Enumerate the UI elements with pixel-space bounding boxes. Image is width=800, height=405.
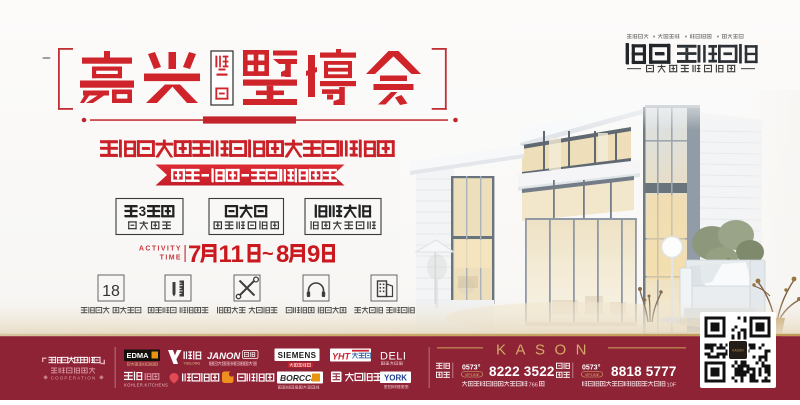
svg-text:KASON: KASON: [732, 349, 744, 353]
svg-text:SIEMENS: SIEMENS: [278, 351, 317, 360]
svg-text:3: 3: [139, 204, 147, 219]
svg-text:8222 3522: 8222 3522: [489, 364, 555, 379]
svg-text:VIPLINE: VIPLINE: [465, 373, 480, 377]
svg-text:KOHLER.KITCHENS: KOHLER.KITCHENS: [124, 383, 168, 388]
svg-text:YUELONG: YUELONG: [184, 362, 201, 366]
svg-text:8818 5777: 8818 5777: [611, 364, 677, 379]
svg-text:7: 7: [188, 241, 201, 268]
svg-text:DELI: DELI: [380, 351, 406, 363]
svg-text:YORK: YORK: [384, 374, 407, 383]
svg-text:BORCCI: BORCCI: [280, 373, 314, 383]
svg-text:8: 8: [276, 241, 289, 268]
svg-text:0573°: 0573°: [462, 364, 481, 372]
svg-text:JANON: JANON: [207, 351, 241, 362]
svg-text:COOPERATION: COOPERATION: [51, 376, 97, 381]
svg-text:0573°: 0573°: [582, 364, 601, 372]
svg-text:766: 766: [529, 382, 538, 388]
svg-text:9: 9: [307, 241, 320, 268]
svg-text:EDMA: EDMA: [127, 351, 150, 360]
svg-text:ACTIVITY: ACTIVITY: [139, 246, 182, 253]
svg-text:VIPLINE: VIPLINE: [585, 373, 600, 377]
svg-text:YHT: YHT: [332, 352, 352, 362]
svg-text:10F: 10F: [667, 382, 677, 388]
svg-text:KASON: KASON: [496, 342, 596, 359]
svg-text:TIME: TIME: [160, 255, 182, 262]
svg-text:18: 18: [102, 283, 120, 300]
svg-text:11: 11: [219, 241, 244, 268]
svg-text:~: ~: [262, 243, 274, 265]
